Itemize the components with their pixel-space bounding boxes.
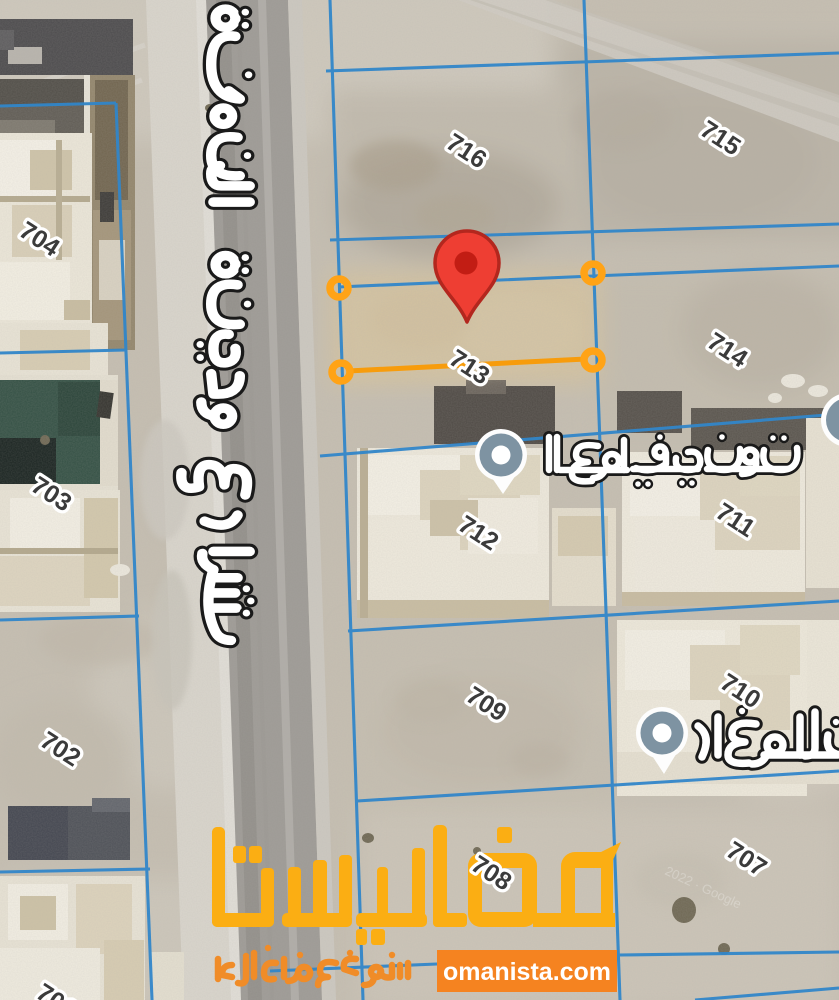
svg-text:omanista.com: omanista.com <box>443 958 611 986</box>
